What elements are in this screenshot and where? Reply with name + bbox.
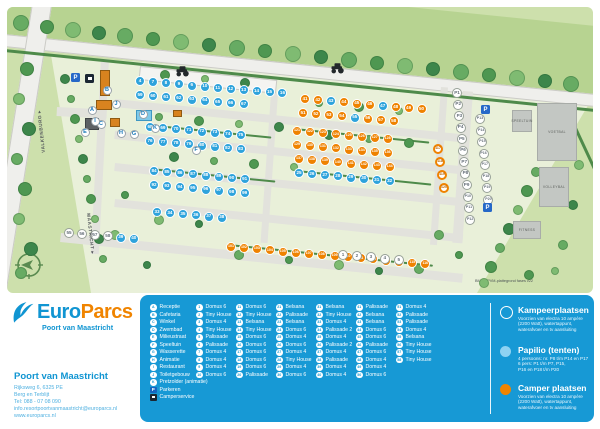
legend-facility-item: DZwembad — [150, 327, 182, 334]
map-plot-dot: 30 — [359, 174, 369, 184]
legend-facility-label: Winkel — [160, 319, 176, 325]
map-plot-dot: 125 — [344, 131, 354, 141]
legend-number-icon: 43 — [356, 319, 363, 326]
legend-number-icon: 19 — [236, 364, 243, 371]
legend-plot-item: 9Domus 4 — [196, 364, 226, 371]
tree — [397, 58, 413, 74]
legend-number-icon: 46 — [356, 342, 363, 349]
legend-facility-item: PParkeren — [150, 387, 181, 394]
pitch-types-panel: KampeerplaatsenVoorzien van electra 10 a… — [492, 295, 592, 422]
tree — [194, 116, 204, 126]
legend-number-icon: 13 — [236, 319, 243, 326]
legend-number-icon: 47 — [356, 349, 363, 356]
facility-marker: K — [151, 124, 160, 133]
map-plot-dot: 127 — [370, 133, 380, 143]
address-line: Berg en Terblijt — [14, 392, 117, 399]
legend-plot-label: Belsana — [246, 319, 265, 325]
map-plot-dot: 66 — [226, 98, 236, 108]
legend-letter-icon: D — [150, 327, 157, 334]
map-plot-dot: 1 — [338, 250, 348, 260]
logo-euro: Euro — [37, 301, 81, 323]
map-plot-dot: P16 — [479, 149, 489, 159]
legend-plot-label: Tiny House — [246, 327, 272, 333]
legend-number-icon: 28 — [276, 357, 283, 364]
legend-plot-label: Domus 6 — [246, 334, 267, 340]
map-plot-dot: 45 — [352, 99, 362, 109]
legend-plot-label: Belsana — [366, 312, 385, 318]
map-plot-dot: 119 — [437, 170, 447, 180]
map-plot-dot: 135 — [370, 147, 380, 157]
map-plot-dot: 52 — [311, 109, 321, 119]
address-line: Tel: 088 - 07 08 090 — [14, 399, 117, 406]
map-plot-dot: P4 — [456, 123, 466, 133]
legend-plot-item: 7Domus 4 — [196, 349, 226, 356]
facility-marker: A — [88, 106, 97, 115]
tree — [70, 114, 80, 124]
legend-facility-item: Camperservice — [150, 394, 194, 401]
tree — [524, 270, 534, 280]
map-plot-dot: 65 — [213, 97, 223, 107]
legend-number-icon: 25 — [276, 334, 283, 341]
facility-marker: H — [117, 129, 126, 138]
legend-number-icon: 53 — [396, 319, 403, 326]
tree — [258, 44, 272, 58]
map-plot-dot: 49 — [404, 103, 414, 113]
europarcs-logo-text: EuroParcs — [37, 301, 133, 324]
map-plot-dot: 37 — [204, 212, 214, 222]
legend-plot-label: Domus 4 — [366, 357, 387, 363]
site-map: BM-ERPVM-plattegrond fases v22 SPEELTUIN… — [7, 7, 593, 293]
map-plot-dot: 137 — [294, 154, 304, 164]
legend-plot-item: 43Belsana — [356, 319, 384, 326]
legend-plot-item: 47Domus 6 — [356, 349, 386, 356]
legend-plot-item: 39Domus 4 — [316, 364, 346, 371]
map-plot-dot: P5 — [457, 134, 467, 144]
legend-number-icon: 52 — [396, 312, 403, 319]
camper-service-icon — [150, 394, 157, 401]
map-plot-dot: 81 — [210, 142, 220, 152]
tree — [117, 28, 133, 44]
legend-plot-label: Belsana — [406, 334, 425, 340]
legend-plot-item: 26Domus 6 — [276, 342, 306, 349]
legend-number-icon: 35 — [316, 334, 323, 341]
legend-plot-label: Belsana — [286, 319, 305, 325]
map-plot-dot: P8 — [460, 169, 470, 179]
legend-number-icon: 3 — [196, 319, 203, 326]
tractor-icon — [330, 61, 345, 72]
legend-plot-item: 5Palissade — [196, 334, 228, 341]
legend-facility-label: Speeltuin — [160, 342, 182, 348]
legend-number-icon: 15 — [236, 334, 243, 341]
map-plot-dot: 57 — [376, 115, 386, 125]
legend-plot-label: Domus 4 — [326, 349, 347, 355]
map-plot-dot: 59 — [135, 90, 145, 100]
sports-field-label: VOETBAL — [548, 130, 566, 134]
legend-plot-label: Tiny House — [406, 342, 432, 348]
legend-plot-label: Domus 6 — [246, 364, 267, 370]
tree — [563, 76, 579, 92]
legend-facility-item: IRestaurant — [150, 364, 185, 371]
map-plot-dot: 85 — [162, 167, 172, 177]
map-plot-dot: 41 — [300, 94, 310, 104]
legend-plot-item: 24Domus 6 — [276, 327, 306, 334]
legend-number-icon: 10 — [196, 372, 203, 379]
sports-field: SPEELTUIN — [512, 110, 532, 132]
legend-plot-item: 19Domus 6 — [236, 364, 266, 371]
legend-letter-icon: A — [150, 304, 157, 311]
legend-number-icon: 36 — [316, 342, 323, 349]
legend-plot-label: Palissade — [366, 342, 389, 348]
legend-plot-item: 8Domus 4 — [196, 357, 226, 364]
tree — [404, 138, 414, 148]
map-plot-dot: 51 — [298, 108, 308, 118]
legend-letter-icon: G — [150, 349, 157, 356]
tree — [370, 56, 384, 70]
parking-icon: P — [481, 105, 490, 114]
sports-field: VOETBAL — [537, 103, 577, 161]
map-plot-dot: 96 — [201, 185, 211, 195]
legend-letter-icon: J — [150, 372, 157, 379]
legend-facility-label: Milieustraat — [160, 334, 187, 340]
legend-plot-item: 58Tiny House — [396, 357, 432, 364]
legend-plot-label: Domus 4 — [326, 319, 347, 325]
tree — [375, 267, 383, 275]
legend-plot-label: Palissade — [286, 312, 309, 318]
tree — [86, 194, 96, 204]
legend-number-icon: 50 — [356, 372, 363, 379]
legend-facility-item: CWinkel — [150, 319, 175, 326]
map-plot-dot: P11 — [464, 203, 474, 213]
legend-plot-item: 48Domus 4 — [356, 357, 386, 364]
map-plot-dot: 99 — [240, 188, 250, 198]
legend-number-icon: 31 — [316, 304, 323, 311]
legend-number-icon: 23 — [276, 319, 283, 326]
map-plot-dot: 60 — [148, 91, 158, 101]
legend-plot-label: Domus 4 — [286, 334, 307, 340]
legend-number-icon: 9 — [196, 364, 203, 371]
legend-plot-item: 45Domus 6 — [356, 334, 386, 341]
tree — [75, 135, 83, 143]
legend-plot-item: 30Domus 6 — [276, 372, 306, 379]
legend-plot-item: 40Domus 4 — [316, 372, 346, 379]
legend-facility-label: Parkeren — [160, 387, 181, 393]
map-plot-dot: P12 — [465, 215, 475, 225]
address-line: Rijksweg 6, 6325 PE — [14, 385, 117, 392]
legend-plot-item: 2Tiny House — [196, 312, 232, 319]
tree — [568, 200, 578, 210]
legend-number-icon: 17 — [236, 349, 243, 356]
legend-number-icon: 38 — [316, 357, 323, 364]
legend-letter-icon: I — [150, 364, 157, 371]
legend-plot-item: 17Domus 6 — [236, 349, 266, 356]
legend-number-icon: 24 — [276, 327, 283, 334]
facility-marker: B — [103, 86, 112, 95]
tree — [65, 22, 81, 38]
tree — [202, 38, 216, 52]
map-plot-dot: P2 — [453, 100, 463, 110]
legend-plot-item: 13Belsana — [236, 319, 264, 326]
map-plot-dot: 122 — [305, 127, 315, 137]
map-plot-dot: 144 — [385, 162, 395, 172]
legend-plot-label: Domus 4 — [286, 364, 307, 370]
tree — [274, 122, 284, 132]
map-plot-dot: 5 — [394, 255, 404, 265]
legend-plot-item: 23Belsana — [276, 319, 304, 326]
building — [96, 100, 112, 110]
legend-number-icon: 26 — [276, 342, 283, 349]
legend-plot-label: Domus 4 — [406, 304, 427, 310]
legend-plot-label: Domus 4 — [326, 334, 347, 340]
legend-facility-label: Camperservice — [160, 394, 195, 400]
address-block: Poort van Maastricht Rijksweg 6, 6325 PE… — [14, 371, 117, 420]
legend-divider — [490, 303, 491, 414]
tree — [13, 15, 29, 31]
map-plot-dot: 7 — [148, 77, 158, 87]
tree — [285, 46, 301, 62]
map-plot-dot: 12 — [226, 84, 236, 94]
legend-number-icon: 58 — [396, 357, 403, 364]
legend-number-icon: 41 — [356, 304, 363, 311]
legend-number-icon: 51 — [396, 304, 403, 311]
map-plot-dot: 4 — [135, 76, 145, 86]
map-plot-dot: 84 — [149, 166, 159, 176]
legend-plot-label: Palissade — [366, 304, 389, 310]
legend-plot-label: Tiny House — [406, 349, 432, 355]
legend-plot-item: 56Tiny House — [396, 342, 432, 349]
map-plot-dot: P9 — [462, 180, 472, 190]
map-plot-dot: 50 — [417, 104, 427, 114]
map-plot-dot: P18 — [481, 172, 491, 182]
legend-plot-label: Palissade — [206, 342, 229, 348]
legend-number-icon: 1 — [196, 304, 203, 311]
legend-number-icon: 55 — [396, 334, 403, 341]
tree — [13, 93, 25, 105]
map-plot-dot: 107 — [304, 249, 314, 259]
tree — [426, 62, 440, 76]
legend-number-icon: 8 — [196, 357, 203, 364]
tree — [455, 251, 463, 259]
tree — [13, 213, 25, 225]
legend-plot-label: Belsana — [286, 304, 305, 310]
map-plot-dot: 72 — [197, 127, 207, 137]
legend-facility-item: JToiletgebouw — [150, 372, 190, 379]
tree — [285, 256, 293, 264]
sports-field: FITNESS — [513, 221, 541, 239]
legend-facility-label: Toiletgebouw — [160, 372, 190, 378]
legend-plot-label: Domus 4 — [286, 349, 307, 355]
map-plot-dot: 138 — [307, 155, 317, 165]
legend-plot-label: Palissade — [326, 357, 349, 363]
europarcs-logo-icon — [8, 299, 36, 327]
legend-number-icon: 16 — [236, 342, 243, 349]
legend-number-icon: 42 — [356, 312, 363, 319]
address-line: www.europarcs.nl — [14, 413, 117, 420]
legend-number-icon: 14 — [236, 327, 243, 334]
map-plot-dot: 39 — [116, 233, 126, 243]
road-label: VALKENBURG ▸ — [37, 110, 47, 153]
legend-plot-item: 6Palissade — [196, 342, 228, 349]
legend-letter-icon: H — [150, 357, 157, 364]
legend-plot-item: 32Tiny House — [316, 312, 352, 319]
legend-plot-item: 31Belsana — [316, 304, 344, 311]
legend-number-icon: 37 — [316, 349, 323, 356]
tree — [551, 267, 559, 275]
legend-number-icon: 18 — [236, 357, 243, 364]
map-plot-dot: 75 — [236, 130, 246, 140]
legend-plot-label: Domus 6 — [246, 342, 267, 348]
legend-plot-item: 29Domus 4 — [276, 364, 306, 371]
legend-plot-label: Palissade — [406, 319, 429, 325]
map-plot-dot: P17 — [480, 160, 490, 170]
map-plot-dot: 98 — [227, 187, 237, 197]
map-plot-dot: 136 — [383, 148, 393, 158]
legend-number-icon: 29 — [276, 364, 283, 371]
legend-plot-item: 18Domus 6 — [236, 357, 266, 364]
legend-facility-label: Restaurant — [160, 364, 185, 370]
tree — [479, 278, 489, 288]
legend-number-icon: 48 — [356, 357, 363, 364]
map-plot-dot: 67 — [239, 99, 249, 109]
legend-plot-item: 52Palissade — [396, 312, 428, 319]
map-plot-dot: 105 — [278, 247, 288, 257]
pitch-type-desc: 4 persoons: nr. P8 t/m P14 en P176 pers:… — [518, 356, 588, 372]
map-plot-dot: 142 — [359, 160, 369, 170]
parking-icon: P — [71, 73, 80, 82]
map-plot-dot: 91 — [240, 174, 250, 184]
legend-plot-label: Domus 6 — [366, 372, 387, 378]
map-plot-dot: P10 — [463, 192, 473, 202]
facility-marker: J — [112, 100, 121, 109]
resort-name: Poort van Maastricht — [14, 371, 117, 382]
legend-facility-label: Pretzolder (animatie) — [160, 379, 208, 385]
legend-plot-item: 38Palissade — [316, 357, 348, 364]
legend-panel: AReceptieBCafetariaCWinkelDZwembadEMilie… — [140, 295, 594, 422]
plattegrond-page: BM-ERPVM-plattegrond fases v22 SPEELTUIN… — [0, 0, 600, 429]
pitch-type-title: Camper plaatsen — [518, 383, 587, 393]
legend-plot-label: Domus 6 — [246, 357, 267, 363]
tree — [20, 62, 34, 76]
legend-number-icon: 21 — [276, 304, 283, 311]
legend-plot-label: Domus 6 — [206, 372, 227, 378]
map-plot-dot: 64 — [200, 96, 210, 106]
map-plot-dot: 133 — [344, 145, 354, 155]
facility-marker: F — [192, 146, 201, 155]
legend-plot-label: Palissade — [406, 312, 429, 318]
tree — [434, 230, 444, 240]
map-plot-dot: 46 — [365, 100, 375, 110]
map-plot-dot: 29 — [346, 173, 356, 183]
legend-plot-item: 28Tiny House — [276, 357, 312, 364]
legend-plot-item: 51Domus 4 — [396, 304, 426, 311]
legend-plot-item: 37Domus 4 — [316, 349, 346, 356]
legend-plot-label: Tiny House — [206, 327, 232, 333]
legend-facility-item: HAnimatie — [150, 357, 180, 364]
legend-plot-item: 55Belsana — [396, 334, 424, 341]
map-plot-dot: 128 — [383, 134, 393, 144]
map-plot-dot: 117 — [433, 144, 443, 154]
legend-plot-item: 14Tiny House — [236, 327, 272, 334]
tree — [485, 261, 497, 273]
brand-panel: EuroParcs Poort van Maastricht Poort van… — [0, 293, 140, 429]
legend-plot-label: Belsana — [326, 304, 345, 310]
legend-plot-label: Domus 6 — [286, 372, 307, 378]
legend-plot-label: Domus 4 — [366, 364, 387, 370]
tree — [482, 68, 496, 82]
legend-plot-item: 36Palissade 2 — [316, 342, 352, 349]
map-plot-dot: 92 — [149, 180, 159, 190]
pitch-type-desc: Voorzien van electra 10 ampère(2200 Watt… — [518, 394, 583, 410]
legend-plot-label: Domus 6 — [246, 349, 267, 355]
legend-facility-item: FSpeeltuin — [150, 342, 181, 349]
map-plot-dot: 97 — [214, 186, 224, 196]
legend-plot-label: Domus 6 — [366, 327, 387, 333]
legend-number-icon: 7 — [196, 349, 203, 356]
sports-field-label: SPEELTUIN — [511, 119, 532, 123]
legend-plot-item: 12Tiny House — [236, 312, 272, 319]
legend-number-icon: 20 — [236, 372, 243, 379]
map-plot-dot: 40 — [129, 234, 139, 244]
legend-number-icon: 2 — [196, 312, 203, 319]
legend-number-icon: 22 — [276, 312, 283, 319]
legend-plot-label: Palissade — [206, 334, 229, 340]
map-plot-dot: 6 — [187, 81, 197, 91]
legend-plot-label: Domus 4 — [326, 372, 347, 378]
map-plot-dot: 38 — [217, 213, 227, 223]
tree — [143, 261, 151, 269]
map-plot-dot: 31 — [372, 175, 382, 185]
map-plot-dot: 25 — [294, 168, 304, 178]
map-plot-dot: 108 — [317, 250, 327, 260]
legend-plot-label: Domus 4 — [326, 364, 347, 370]
map-plot-dot: 89 — [214, 172, 224, 182]
tree — [521, 185, 533, 197]
tree — [513, 205, 523, 215]
legend-plot-label: Domus 6 — [286, 342, 307, 348]
legend-plot-item: 15Domus 6 — [236, 334, 266, 341]
legend-letter-icon: K — [150, 379, 157, 386]
tree — [155, 113, 163, 121]
map-plot-dot: 83 — [236, 144, 246, 154]
legend-plot-item: 25Domus 4 — [276, 334, 306, 341]
tree — [92, 26, 106, 40]
legend-number-icon: 6 — [196, 342, 203, 349]
legend-number-icon: 39 — [316, 364, 323, 371]
facility-marker: D — [139, 110, 148, 119]
legend-plot-label: Domus 6 — [246, 304, 267, 310]
map-plot-dot: 58 — [389, 116, 399, 126]
map-plot-dot: 26 — [307, 169, 317, 179]
map-plot-dot: 90 — [227, 173, 237, 183]
pitch-type-desc-line: waterafvoer en tv aansluiting — [518, 405, 583, 410]
map-plot-dot: 101 — [226, 242, 236, 252]
legend-facility-label: Zwembad — [160, 327, 183, 333]
map-plot-dot: 34 — [165, 208, 175, 218]
parking-icon: P — [483, 203, 492, 212]
map-plot-dot: 10 — [200, 82, 210, 92]
legend-letter-icon: B — [150, 312, 157, 319]
legend-plot-item: 46Palissade — [356, 342, 388, 349]
tree — [99, 255, 107, 263]
map-plot-dot: 143 — [372, 161, 382, 171]
tree — [314, 50, 328, 64]
map-plot-dot: 82 — [223, 143, 233, 153]
parking-icon: P — [150, 387, 157, 394]
legend-plot-label: Tiny House — [246, 312, 272, 318]
legend-plot-item: 34Palissade 2 — [316, 327, 352, 334]
tree — [235, 120, 243, 128]
legend-plot-label: Domus 6 — [366, 334, 387, 340]
legend-plot-label: Domus 4 — [206, 357, 227, 363]
